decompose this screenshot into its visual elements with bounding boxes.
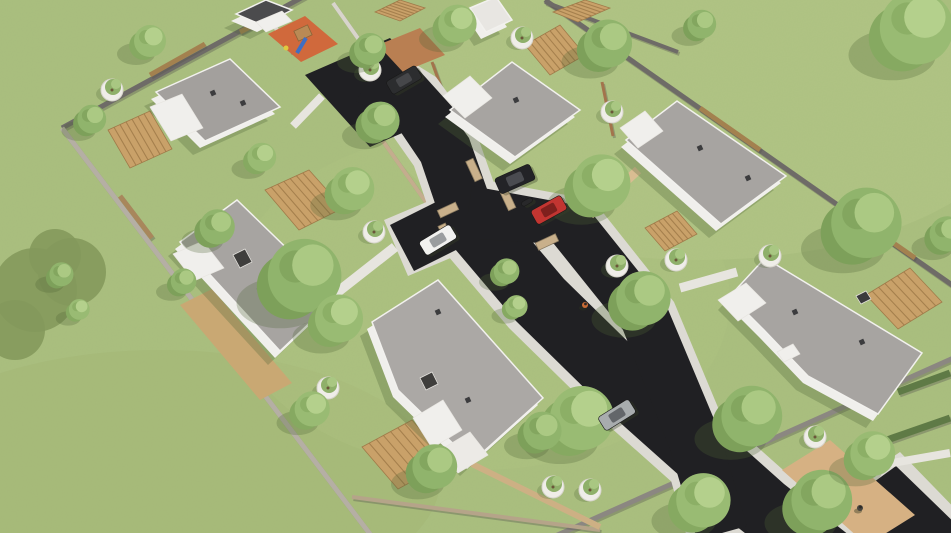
person-head [584,303,587,306]
canopy-highlight [365,35,383,53]
trunk [616,265,619,268]
small-tree-highlight [327,377,337,387]
trunk [589,489,592,492]
small-tree-highlight [769,245,779,255]
aerial-render-viewport [0,0,951,533]
housing-development-render [0,0,951,533]
canopy-highlight [592,159,624,191]
small-tree-highlight [616,255,626,265]
canopy-highlight [374,104,396,126]
small-tree-highlight [675,249,685,259]
canopy-highlight [694,477,725,508]
trunk [521,37,524,40]
trunk [111,89,114,92]
canopy-highlight [742,390,776,424]
trunk [769,255,772,258]
canopy-highlight [513,297,526,310]
canopy-highlight [179,270,193,284]
spring-toy [284,46,289,51]
small-tree-highlight [521,27,531,37]
small-tree-highlight [111,79,121,89]
trunk [611,111,614,114]
canopy-highlight [57,264,71,278]
small-tree-highlight [552,476,562,486]
small-tree-highlight [589,479,599,489]
canopy-highlight [634,275,665,306]
canopy-highlight [306,394,326,414]
small-tree-highlight [611,101,621,111]
canopy-highlight [536,414,558,436]
canopy-highlight [145,27,163,45]
small-tree-highlight [814,426,824,436]
canopy-highlight [76,301,88,313]
canopy-highlight [257,145,273,161]
canopy-highlight [427,448,452,473]
trunk [327,387,330,390]
canopy-highlight [292,244,333,285]
canopy-highlight [331,298,358,325]
canopy-highlight [502,260,516,274]
canopy-highlight [451,7,473,29]
person-head [859,506,862,509]
trunk [675,259,678,262]
trunk [814,436,817,439]
trunk [552,486,555,489]
canopy-highlight [345,170,369,194]
canopy-highlight [87,107,103,123]
canopy-highlight [855,193,895,233]
trunk [373,231,376,234]
canopy-highlight [211,212,231,232]
canopy-highlight [865,435,890,460]
small-tree-highlight [373,221,383,231]
canopy-highlight [697,12,713,28]
canopy-highlight [600,23,627,50]
